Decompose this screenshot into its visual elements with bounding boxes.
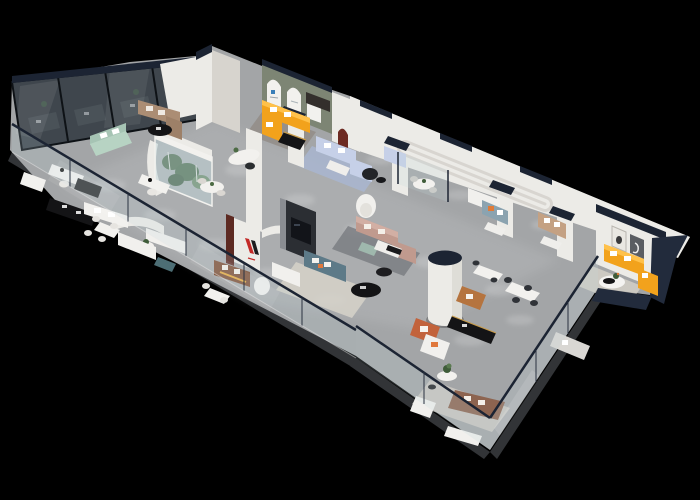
tall-wall-face [196,50,212,130]
tv-reflection [294,224,300,226]
arch-niche-logo [271,90,275,94]
column-cap [428,251,462,266]
isometric-floorplan-svg [0,0,700,500]
tall-wall-side [212,50,240,133]
black-tub-chair [362,168,378,180]
corridor-partition [246,128,262,232]
showroom-render [0,0,700,500]
